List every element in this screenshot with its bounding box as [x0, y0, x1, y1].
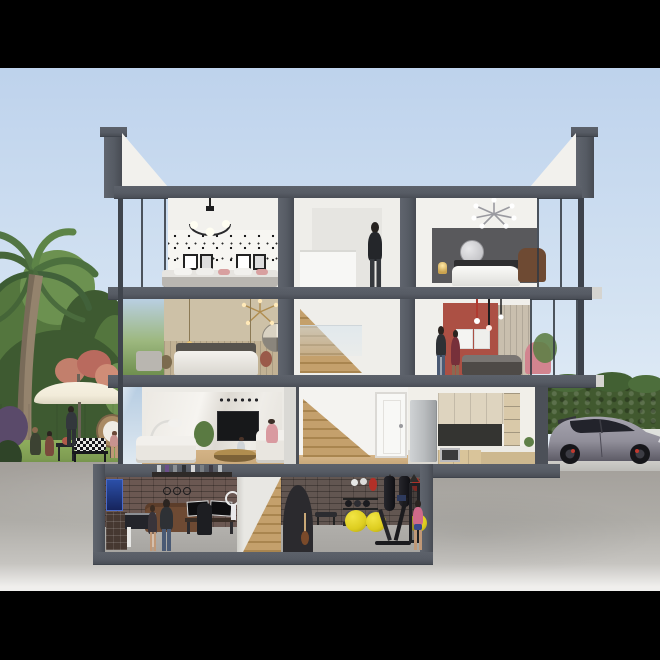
drawer-chest [106, 512, 127, 550]
stair-flight [243, 477, 281, 552]
column [400, 198, 416, 287]
stairwell-second [294, 299, 400, 375]
guitar-body [301, 531, 309, 545]
gallery-strip [218, 396, 258, 404]
window-top-left [118, 198, 168, 287]
home-gym [281, 477, 420, 552]
window-second-right [530, 299, 578, 375]
machine-upright [394, 497, 409, 541]
stair-stringer-shadow [237, 477, 244, 552]
garden-seated-woman [43, 431, 56, 465]
edge-mullion-right [578, 299, 584, 375]
garden-standing-man [64, 406, 79, 446]
column [278, 198, 294, 287]
kettlebell [354, 500, 361, 507]
floor-top [104, 198, 584, 287]
car-rear-caliper [571, 449, 575, 453]
entrance-hall [299, 387, 408, 464]
figurine [218, 465, 222, 472]
bed-duvet [452, 266, 520, 286]
figurine [165, 465, 169, 472]
sofa-woman [264, 419, 280, 451]
basement-floor-slab [93, 552, 433, 565]
guitar-neck [304, 513, 306, 533]
internal-door [375, 392, 407, 458]
wall-headphones [163, 487, 171, 495]
gaming-chair [197, 503, 212, 535]
letterbox-bottom [0, 591, 660, 660]
bench-legs [317, 517, 335, 525]
led-poster [106, 479, 123, 511]
edge-mullion-left [118, 198, 123, 464]
guitar [301, 513, 309, 547]
partition-wall [284, 387, 299, 464]
landing-man [366, 222, 385, 287]
bed-pillow [196, 268, 214, 275]
figurine [157, 465, 161, 472]
cutaway-render [0, 0, 660, 660]
picture-frame [253, 254, 266, 270]
splashback [438, 424, 502, 446]
console-tower [231, 505, 236, 520]
potted-plant [194, 421, 214, 447]
window-bench [136, 351, 162, 371]
living-room [142, 387, 284, 464]
ground-right-wall [535, 387, 548, 464]
elliptical-trainer [375, 497, 411, 545]
window-top-right [537, 198, 578, 287]
vase-plant [260, 351, 272, 367]
foosball-dad [158, 499, 175, 551]
sofa-left [136, 436, 196, 463]
gold-sputnik [238, 299, 282, 327]
rod-pendant [467, 299, 511, 333]
letterbox-top [0, 0, 660, 68]
bedroom-red [415, 299, 530, 375]
figurine-shelf [152, 472, 232, 477]
brass-coffee-table [214, 449, 256, 462]
bed-pillow-pink [218, 269, 230, 275]
wall-headphones [183, 487, 191, 495]
car-front-caliper [635, 449, 639, 453]
wall-pad [351, 479, 358, 486]
bedroom-beige [164, 299, 278, 375]
wall-headphones [173, 487, 181, 495]
fridge [410, 400, 437, 462]
hedge-top [628, 375, 660, 393]
open-shelving [504, 393, 520, 446]
ring-chandelier [182, 198, 238, 238]
speed-bag [369, 478, 377, 491]
oven [440, 448, 460, 462]
figurine [173, 465, 177, 472]
bed-pillow [174, 268, 192, 275]
figurine [200, 465, 204, 472]
kettlebell [345, 500, 352, 507]
counter-plant [524, 437, 534, 447]
upper-cabinets [438, 393, 504, 424]
edge-mullion-right [578, 198, 584, 287]
bed-duvet [174, 351, 258, 375]
column [400, 299, 415, 375]
floor-ground [104, 387, 560, 464]
bed-pillow [234, 268, 252, 275]
stair-landing [294, 198, 400, 287]
slab-ledge [592, 287, 602, 299]
figurine [209, 465, 213, 472]
glass-balustrade [300, 325, 362, 356]
door-handle [399, 424, 403, 428]
sputnik-light [468, 198, 520, 232]
games-room [105, 477, 237, 552]
red-room-woman [449, 330, 462, 377]
column [278, 299, 294, 375]
kitchen [408, 387, 539, 464]
red-room-man [434, 326, 448, 377]
garden-seated-man [28, 427, 43, 465]
bedroom-wallpaper [168, 198, 278, 287]
figurine [191, 465, 195, 472]
basement-stairwell [237, 477, 281, 552]
gym-runner [411, 500, 425, 547]
wall-pad [360, 478, 367, 485]
machine-rail [375, 541, 411, 545]
kettlebell [363, 500, 370, 507]
machine-arm [378, 509, 392, 541]
dark-bed [462, 355, 522, 375]
machine-console [397, 495, 406, 501]
island-counter [481, 448, 538, 464]
figurine [182, 465, 186, 472]
landing-half-wall [300, 250, 356, 289]
foosball-daughter [147, 505, 159, 549]
workout-bench [315, 509, 337, 525]
bedside-lamp [438, 262, 447, 274]
bedroom-grey [416, 198, 537, 287]
basement [105, 477, 420, 552]
pendant-bulb-cord [250, 299, 251, 343]
exercise-ball [345, 510, 367, 532]
basement-wall-left [93, 464, 105, 564]
bed-pillow-pink [256, 269, 268, 275]
slab-ledge [596, 375, 604, 387]
floor-second [104, 299, 584, 375]
stair-flight [303, 399, 371, 457]
pendant-bulb-cord [189, 299, 190, 341]
